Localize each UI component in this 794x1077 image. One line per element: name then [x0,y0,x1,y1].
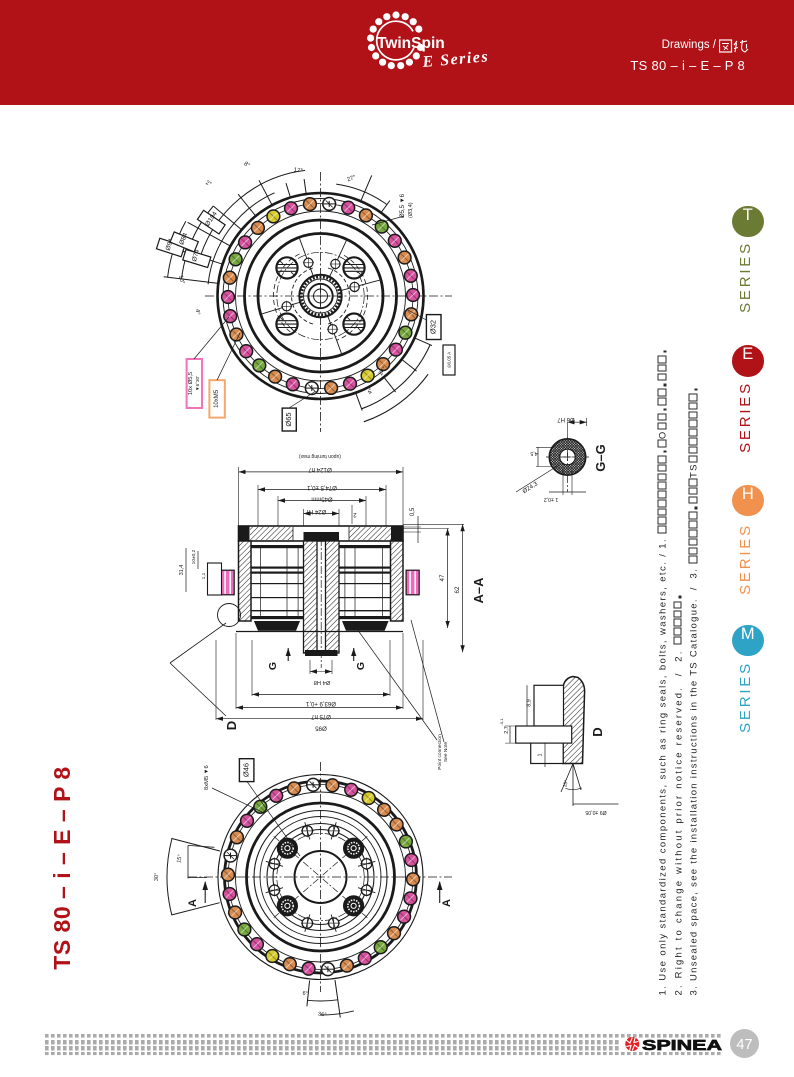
svg-text:30°: 30° [154,873,160,882]
svg-text:Ø75 h7: Ø75 h7 [310,713,330,719]
svg-text:A: A [441,899,453,907]
svg-text:Ø24 H7: Ø24 H7 [305,508,326,514]
svg-text:10xM5: 10xM5 [214,389,220,408]
svg-text:Point connection: Point connection [437,734,443,770]
svg-text:4°: 4° [367,387,375,395]
svg-text:D: D [590,727,605,736]
svg-text:▼6°30': ▼6°30' [195,376,200,391]
svg-text:62: 62 [454,586,461,593]
svg-text:(Ø3,4): (Ø3,4) [408,202,414,218]
svg-text:Ø5,5 ▼6: Ø5,5 ▼6 [400,193,406,218]
svg-text:Ø95: Ø95 [315,725,327,732]
svg-text:8,9: 8,9 [527,699,533,707]
svg-text:A: A [187,899,199,907]
svg-text:Ø63,9 +0,1: Ø63,9 +0,1 [305,700,336,706]
svg-text:15°: 15° [176,854,183,863]
svg-text:G–G: G–G [593,444,608,471]
svg-text:8°: 8° [242,161,251,170]
svg-text:Ø124 h7: Ø124 h7 [308,466,332,473]
svg-text:Ø65: Ø65 [284,412,293,426]
svg-text:4,5: 4,5 [530,450,537,456]
svg-text:See Note: See Note [443,742,449,762]
svg-text:(upon turning max): (upon turning max) [299,453,341,459]
svg-text:47: 47 [736,1037,752,1053]
svg-text:-0,1: -0,1 [499,718,504,726]
svg-text:G: G [267,662,279,670]
svg-text:2: 2 [353,511,357,517]
svg-text:36°: 36° [318,1011,327,1018]
svg-text:10x Ø5,5: 10x Ø5,5 [188,372,194,396]
svg-text:31,4: 31,4 [179,565,185,576]
svg-text:Ø6 H7: Ø6 H7 [557,416,575,422]
svg-text:47: 47 [439,574,446,581]
svg-text:G: G [355,662,367,670]
svg-text:15°: 15° [562,779,570,788]
svg-text:Ø9 ±0,05: Ø9 ±0,05 [585,809,606,815]
svg-text:10±0,2: 10±0,2 [191,549,197,564]
svg-text:Ø32: Ø32 [429,320,438,334]
svg-text:Ø45mm: Ø45mm [311,496,332,502]
svg-text:1: 1 [538,754,544,757]
svg-text:A–A: A–A [471,577,486,604]
svg-text:4°: 4° [194,309,201,316]
svg-text:◎0,05 A: ◎0,05 A [447,352,452,368]
svg-text:Ø46: Ø46 [242,763,251,777]
svg-text:6°: 6° [302,991,308,997]
svg-text:0,5: 0,5 [410,507,416,516]
svg-text:1 ±0,2: 1 ±0,2 [544,496,558,502]
svg-text:27°: 27° [346,174,357,183]
svg-text:1,1: 1,1 [201,572,207,579]
svg-text:2,7: 2,7 [504,726,510,734]
svg-text:D: D [224,721,239,730]
svg-text:8xM5 ▼6: 8xM5 ▼6 [204,765,210,790]
svg-text:Ø4 H8: Ø4 H8 [314,679,331,685]
svg-text:17°: 17° [293,167,303,174]
svg-text:Ø74,5 ±0,1: Ø74,5 ±0,1 [307,484,337,490]
svg-text:SPINEA: SPINEA [642,1037,722,1054]
svg-text:10°: 10° [177,275,185,286]
svg-text:2°: 2° [205,180,213,188]
